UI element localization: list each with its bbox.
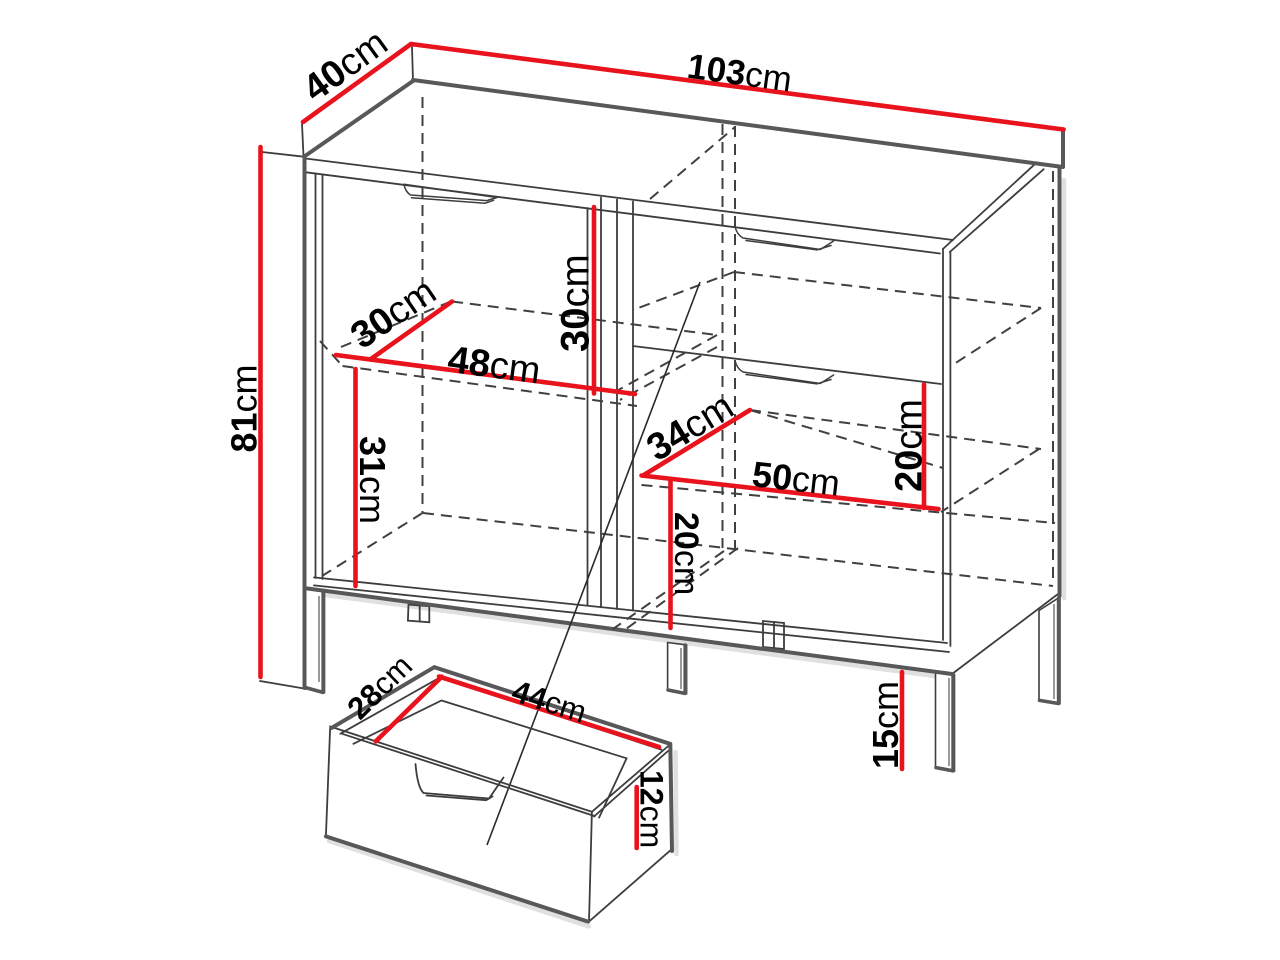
svg-text:31cm: 31cm bbox=[352, 436, 393, 524]
svg-text:81cm: 81cm bbox=[224, 364, 265, 452]
svg-text:12cm: 12cm bbox=[634, 770, 670, 848]
svg-text:15cm: 15cm bbox=[865, 681, 906, 769]
svg-text:20cm: 20cm bbox=[889, 399, 931, 492]
svg-text:20cm: 20cm bbox=[667, 512, 705, 595]
svg-text:30cm: 30cm bbox=[554, 254, 598, 352]
